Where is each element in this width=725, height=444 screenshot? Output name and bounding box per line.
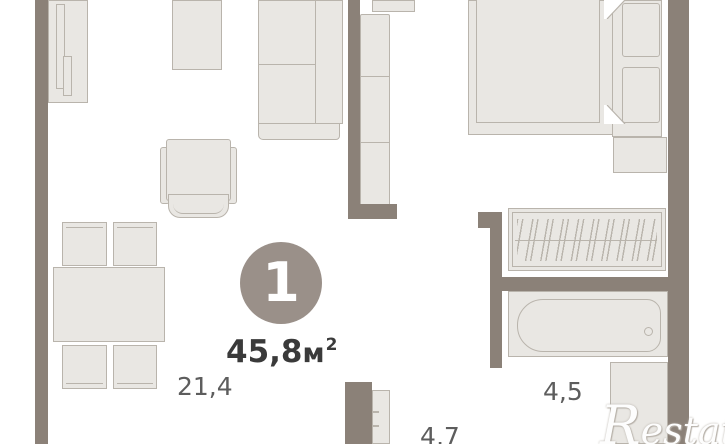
clothes-hangers-icon <box>517 219 657 261</box>
sofa-seat-cushion <box>258 64 316 124</box>
tall-cabinet <box>360 14 390 210</box>
pillow <box>622 67 660 123</box>
sofa-backrest <box>315 0 343 124</box>
dining-chair <box>113 222 157 266</box>
nightstand <box>613 137 667 173</box>
wall-right <box>668 0 689 444</box>
wall-divider-foot <box>348 204 397 219</box>
room-area-bathroom: 4,5 <box>543 377 583 406</box>
unit-badge: 1 <box>240 242 322 324</box>
double-bed <box>468 0 662 137</box>
watermark-logo: Restate <box>600 394 725 444</box>
dining-table <box>53 267 165 342</box>
armchair-backrest <box>168 194 229 218</box>
armchair <box>160 138 237 219</box>
bathtub <box>508 291 668 357</box>
blanket-fold-icon <box>604 0 626 19</box>
armchair-seat <box>166 139 231 201</box>
pillow <box>622 3 660 57</box>
blanket-fold-icon <box>604 105 626 124</box>
wall-bottom-center <box>345 382 372 444</box>
sofa-armrest <box>258 123 340 140</box>
wall-bathroom-left <box>490 222 502 368</box>
floor-plan: 1 45,8м2 21,4 4,5 4,7 Restate <box>0 0 725 444</box>
corner-sofa <box>258 0 343 140</box>
total-area-label: 45,8м2 <box>226 334 336 370</box>
wall-shelf <box>372 0 415 12</box>
bathtub-drain <box>644 327 653 336</box>
tv-stand-shelf <box>63 56 72 96</box>
dining-chair <box>62 345 107 389</box>
room-area-living: 21,4 <box>177 372 233 401</box>
wall-left <box>35 0 48 444</box>
bathtub-basin <box>517 299 661 352</box>
dining-chair <box>113 345 157 389</box>
wall-divider <box>348 0 360 206</box>
wall-bathroom-top <box>495 277 668 291</box>
side-table <box>172 0 222 70</box>
tv-stand <box>48 0 88 103</box>
room-area-hallway: 4,7 <box>420 422 460 444</box>
radiator <box>372 390 390 444</box>
dining-chair <box>62 222 107 266</box>
wardrobe <box>508 208 666 271</box>
sofa-chaise-cushion <box>258 0 316 66</box>
bed-mattress <box>476 0 600 123</box>
unit-number: 1 <box>262 256 300 310</box>
